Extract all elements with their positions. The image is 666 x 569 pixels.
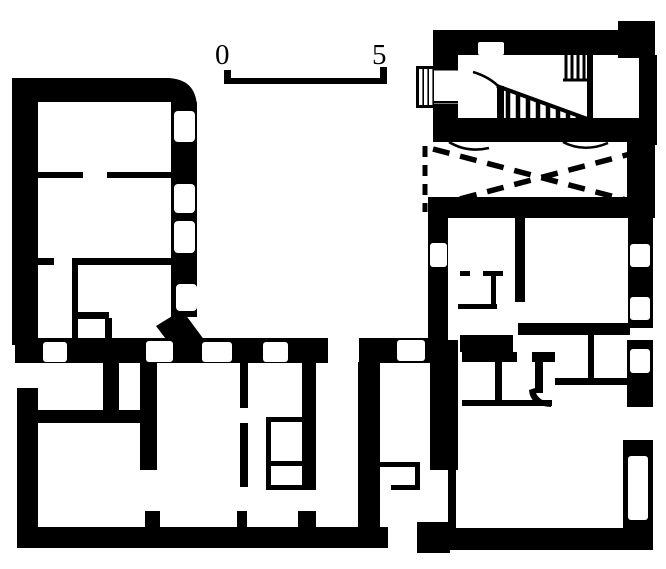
left-wing xyxy=(12,78,208,414)
closet-wall xyxy=(483,271,503,276)
window xyxy=(630,349,650,373)
crossed-room xyxy=(425,142,655,218)
wall-left-lower xyxy=(17,388,38,528)
scale-bar-line xyxy=(227,78,387,84)
partition xyxy=(107,172,171,178)
closet-wall xyxy=(391,485,420,490)
window xyxy=(174,221,195,253)
wall-left-bottom xyxy=(448,470,456,528)
window xyxy=(202,342,232,362)
wall-thick-vertical xyxy=(302,362,316,490)
window xyxy=(630,297,650,320)
closet-wall xyxy=(415,462,420,486)
wall-left-outer xyxy=(12,78,38,345)
wall-cross xyxy=(462,352,517,362)
wall-left xyxy=(433,40,458,69)
stair-side-wall xyxy=(587,55,593,118)
step xyxy=(424,69,427,105)
partition xyxy=(555,378,628,385)
bottom-range xyxy=(15,337,450,553)
partition xyxy=(72,265,78,346)
partition xyxy=(495,362,502,403)
scale-bar-left-tick xyxy=(224,70,231,84)
wall-bottom xyxy=(448,528,653,550)
wall-room-top xyxy=(18,410,150,423)
partition xyxy=(72,258,172,265)
floor-plan-drawing: 0 5 xyxy=(0,0,666,569)
wall-cross xyxy=(532,352,555,362)
partition xyxy=(30,258,54,265)
partition xyxy=(588,330,594,380)
wall-bottom xyxy=(433,118,655,142)
window xyxy=(176,284,197,311)
partition xyxy=(462,400,552,406)
wall-niche xyxy=(478,42,504,55)
partition xyxy=(515,218,525,302)
wall-top xyxy=(433,30,628,55)
wall-left-lower xyxy=(430,340,458,470)
partition xyxy=(38,172,83,178)
wall-thick-vertical xyxy=(140,363,157,470)
closet-divider xyxy=(268,461,307,466)
step xyxy=(419,69,422,105)
scale-label-end: 5 xyxy=(372,39,387,71)
window xyxy=(43,342,67,362)
window xyxy=(430,243,447,267)
wall-stub xyxy=(237,511,247,528)
curved-line xyxy=(473,72,500,88)
wall-cross xyxy=(460,335,513,352)
window xyxy=(628,456,648,520)
wall-range-bottom xyxy=(17,527,388,548)
window xyxy=(174,184,195,213)
stair-hall xyxy=(416,21,657,145)
wall-left xyxy=(428,197,448,343)
closet-wall xyxy=(460,271,470,276)
stair-newel xyxy=(497,86,504,119)
staircase xyxy=(497,86,593,121)
partition xyxy=(103,362,119,414)
window xyxy=(397,340,425,361)
scale-bar: 0 5 xyxy=(215,39,387,84)
wall-corner-stub xyxy=(145,511,160,528)
closet-wall xyxy=(266,417,271,490)
scale-label-start: 0 xyxy=(215,39,230,71)
window xyxy=(174,111,195,142)
closet-wall xyxy=(266,485,307,490)
door-threshold-line xyxy=(433,101,458,104)
door-swing-arc xyxy=(563,142,608,148)
door-swing-arc xyxy=(449,142,489,150)
wall-thick-vertical xyxy=(358,362,380,530)
wall-cross xyxy=(518,323,630,335)
partition xyxy=(240,363,248,408)
wall-top xyxy=(12,78,170,102)
wall-bottom xyxy=(433,197,655,218)
entrance-steps xyxy=(416,66,434,108)
closet-wall xyxy=(266,417,307,422)
partition xyxy=(240,423,248,487)
partition xyxy=(72,312,109,319)
window xyxy=(263,342,288,362)
pilaster xyxy=(618,21,655,58)
wall-stub xyxy=(298,511,316,528)
window xyxy=(630,244,650,267)
closet-wall xyxy=(458,304,497,309)
door-opening xyxy=(328,337,359,364)
partition xyxy=(535,362,543,393)
right-wing xyxy=(428,197,653,550)
floor-plan-page: 0 5 xyxy=(0,0,666,569)
wall-bottom-piece xyxy=(417,522,450,553)
closet-wall xyxy=(491,276,496,305)
door-threshold-line xyxy=(433,68,458,71)
step xyxy=(429,69,432,105)
closet-wall xyxy=(380,462,420,467)
door-opening xyxy=(146,341,173,362)
wall-stub xyxy=(435,462,455,470)
